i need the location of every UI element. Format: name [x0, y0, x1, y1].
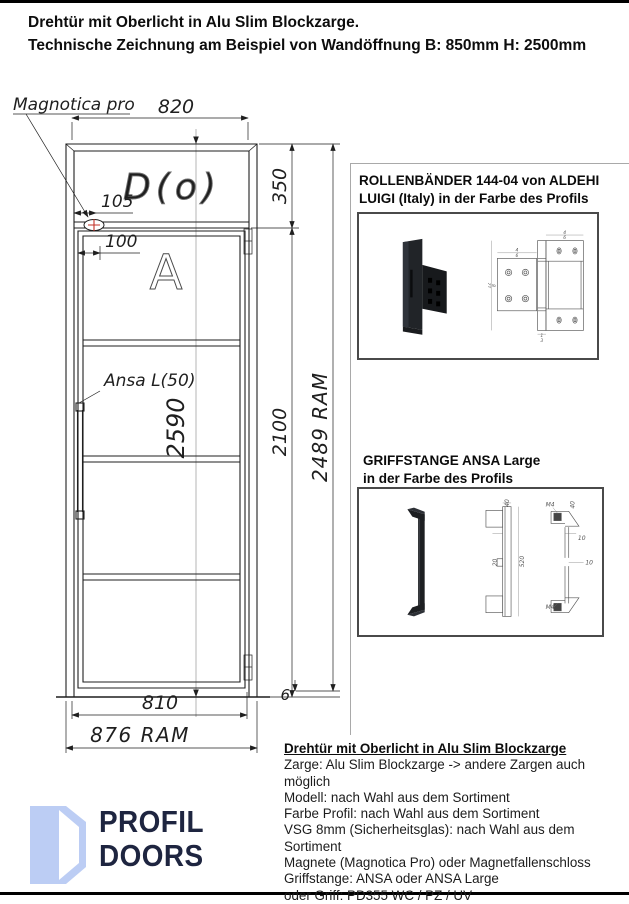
dim-6: 6 [280, 680, 295, 704]
handle-photo [395, 495, 444, 629]
svg-text:4: 4 [563, 230, 566, 236]
dim-2489-ram: 2489 RAM [308, 144, 333, 691]
hinge-title-line2: LUIGI (Italy) in der Farbe des Profils [359, 190, 599, 208]
muntin-bar-1 [83, 340, 240, 346]
handle-title-line1: GRIFFSTANGE ANSA Large [363, 452, 540, 470]
handle-marker [76, 403, 84, 519]
dim-810: 810 [72, 692, 247, 719]
dim-105: 105 [74, 192, 133, 222]
svg-text:40: 40 [505, 499, 512, 507]
svg-text:2100: 2100 [269, 408, 291, 456]
handle-leader-line [79, 391, 100, 403]
svg-text:3: 3 [540, 338, 543, 344]
magnet-leader-line [26, 114, 88, 217]
handle-panel-title: GRIFFSTANGE ANSA Large in der Farbe des … [363, 452, 540, 488]
svg-text:M4: M4 [546, 502, 555, 509]
svg-text:876 RAM: 876 RAM [90, 723, 190, 747]
magnet-label: Magnotica pro [13, 95, 135, 115]
dim-350: 350 [269, 144, 292, 228]
hinge-title-line1: ROLLENBÄNDER 144-04 von ALDEHI [359, 172, 599, 190]
svg-text:2590: 2590 [162, 397, 190, 458]
muntin-bar-3 [83, 574, 240, 580]
product-specs: Drehtür mit Oberlicht in Alu Slim Blockz… [284, 741, 628, 904]
svg-text:520: 520 [520, 556, 527, 568]
svg-text:M4: M4 [546, 604, 555, 611]
wordmark-line1: PROFIL [99, 805, 204, 839]
spec-line: Zarge: Alu Slim Blockzarge -> andere Zar… [284, 757, 628, 790]
wordmark-line2: DOORS [99, 839, 204, 873]
svg-text:810: 810 [142, 692, 178, 714]
hinge-panel-title: ROLLENBÄNDER 144-04 von ALDEHI LUIGI (It… [359, 172, 599, 208]
specs-title: Drehtür mit Oberlicht in Alu Slim Blockz… [284, 741, 628, 757]
spec-line: Magnete (Magnotica Pro) oder Magnetfalle… [284, 855, 628, 871]
profildoors-wordmark: PROFIL DOORS [99, 805, 204, 873]
spec-line: oder Griff: PD355 WC / PZ / UV [284, 888, 628, 904]
svg-text:6: 6 [563, 235, 566, 241]
spec-line: Griffstange: ANSA oder ANSA Large [284, 871, 628, 887]
hinge-panel-box: 4 6 4 6 12 8 1 3 [357, 212, 599, 360]
column-divider-horizontal [350, 163, 629, 164]
dim-2100: 2100 [269, 228, 292, 697]
dim-2590: 2590 [162, 137, 199, 698]
spec-line: Farbe Profil: nach Wahl aus dem Sortimen… [284, 806, 628, 822]
svg-text:6: 6 [516, 253, 519, 259]
svg-text:20: 20 [493, 558, 500, 566]
svg-text:6: 6 [280, 686, 290, 704]
transom-watermark: D(o) [123, 167, 221, 208]
profildoors-logo-icon [30, 806, 86, 884]
spec-line: Modell: nach Wahl aus dem Sortiment [284, 790, 628, 806]
handle-label: Ansa L(50) [103, 371, 195, 391]
svg-text:10: 10 [578, 535, 586, 542]
handle-panel-box: 40 20 520 40 M4 M4 10 10 [357, 487, 604, 637]
document-header: Drehtür mit Oberlicht in Alu Slim Blockz… [28, 11, 608, 57]
svg-text:350: 350 [269, 168, 291, 204]
spec-line: VSG 8mm (Sicherheitsglas): nach Wahl aus… [284, 822, 628, 855]
svg-text:820: 820 [158, 96, 194, 118]
handle-drawing: 40 20 520 40 M4 M4 10 10 [472, 496, 598, 628]
svg-text:2489 RAM: 2489 RAM [308, 372, 332, 482]
hinge-photo [385, 227, 462, 345]
hinge-drawing: 4 6 4 6 12 8 1 3 [488, 222, 591, 350]
svg-text:105: 105 [101, 192, 133, 212]
svg-text:1: 1 [540, 333, 543, 339]
svg-text:10: 10 [586, 559, 594, 566]
header-title-line2: Technische Zeichnung am Beispiel von Wan… [28, 34, 608, 57]
svg-text:4: 4 [516, 248, 519, 254]
header-title-line1: Drehtür mit Oberlicht in Alu Slim Blockz… [28, 11, 608, 34]
door-technical-drawing: D(o) A Magnotica pro Ansa L(50) 820 [0, 95, 350, 785]
model-letter: A [150, 245, 183, 301]
svg-text:100: 100 [105, 232, 137, 252]
page-top-border [0, 0, 629, 3]
svg-text:8: 8 [492, 284, 498, 287]
magnet-marker [84, 219, 104, 231]
handle-title-line2: in der Farbe des Profils [363, 470, 540, 488]
column-divider-vertical [350, 163, 351, 735]
svg-text:40: 40 [570, 501, 577, 509]
